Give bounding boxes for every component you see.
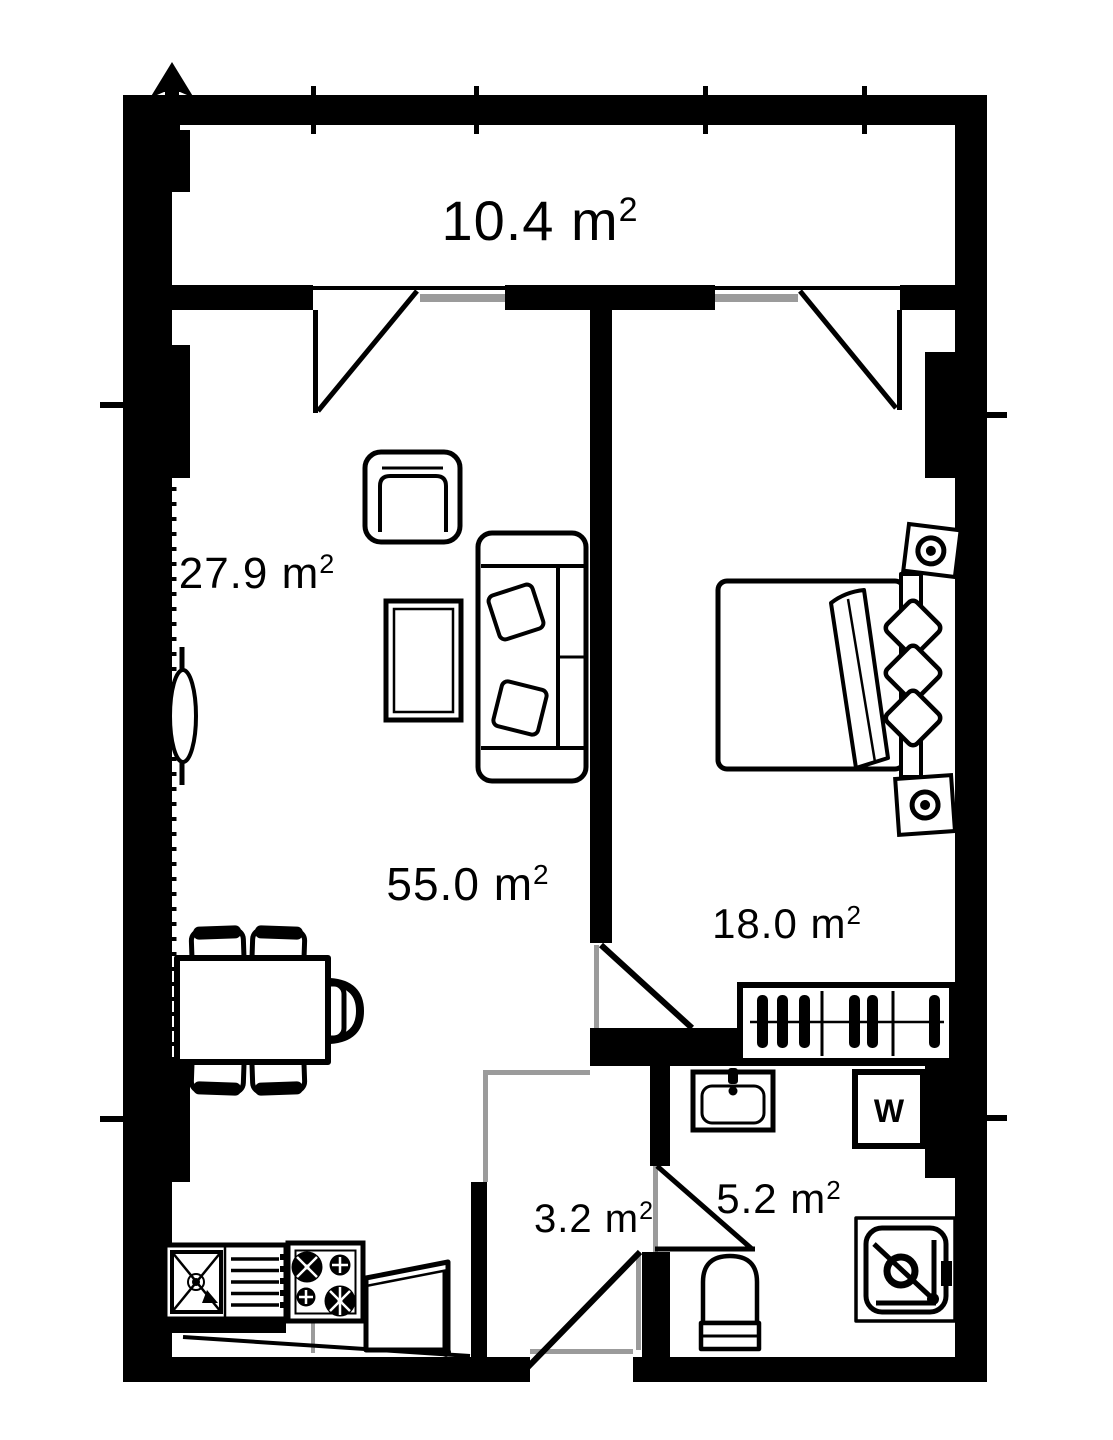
floor-plan: 10.4 m2 27.9 m2 55.0 m2 18.0 m2 3.2 m2 5… [0,0,1113,1440]
hallway-area-label: 3.2 m2 [534,1197,654,1241]
mullion-tick [862,86,867,134]
toilet [701,1256,759,1349]
hall-boundary-left [483,1070,488,1182]
bedroom-door-jamb-line [594,945,599,1028]
mullion-tick [703,86,708,134]
wall-left-pier-upper [123,345,190,478]
balcony-column [157,130,190,192]
balcony-glazing-living [420,294,505,302]
stove-burner [330,1255,351,1276]
coffee-table [386,601,461,720]
kitchen-appliance [366,1262,451,1357]
sofa-pillow [492,680,548,736]
kitchen-stove [288,1243,363,1321]
stove-burner [292,1252,323,1283]
mullion-tick [311,86,316,134]
total-area-label: 55.0 m2 [386,858,549,910]
living-room-area-label: 27.9 m2 [179,549,336,598]
wall-right-pier-lower [925,1060,987,1178]
armchair [365,452,460,542]
wall-top [123,95,987,125]
washbasin [693,1068,773,1130]
nightstand-top [903,524,960,577]
wall-bathroom-left-upper [650,1066,670,1166]
wall-bottom-right-segment [633,1357,987,1382]
bathroom-area-label: 5.2 m2 [716,1175,842,1222]
mullion-tick [474,86,479,134]
wardrobe [740,985,952,1061]
balcony-door-bedroom [800,291,902,410]
wall-bathroom-left-stub [642,1252,670,1359]
exterior-tick [100,1116,123,1122]
dining-set [177,925,360,1096]
wall-living-bedroom-divider [590,285,612,943]
balcony-door-living-room [313,291,417,413]
exterior-tick [100,402,123,408]
bedroom-door [601,945,692,1028]
sofa [478,533,586,781]
wall-bottom-left-segment [123,1357,530,1382]
wall-balcony-front-right [900,285,987,310]
shower [856,1218,955,1321]
nightstand-bottom [895,775,955,835]
counter-divider-line [311,1320,315,1353]
exterior-tick [987,412,1007,418]
stove-burner [297,1288,316,1307]
wall-right-pier-upper [925,352,987,478]
floor-plan-canvas: 10.4 m2 27.9 m2 55.0 m2 18.0 m2 3.2 m2 5… [0,0,1113,1440]
balcony-glazing-bedroom [715,294,798,302]
balcony-area-label: 10.4 m2 [441,189,638,252]
wall-hall-stub [471,1182,487,1357]
shower-mixer [941,1261,952,1286]
balcony-door-track-bedroom [715,286,900,290]
washing-machine-label: W [874,1093,905,1129]
balcony-door-track-living [313,286,505,290]
bedroom-area-label: 18.0 m2 [712,900,862,947]
entrance-jamb-line [636,1252,641,1350]
bed [718,574,943,777]
dining-table [177,958,328,1062]
hall-boundary-top [487,1070,590,1075]
exterior-tick [987,1115,1007,1121]
wall-balcony-front-left [123,285,313,310]
stove-burner [325,1286,356,1317]
kitchen-sink-unit [165,1245,286,1319]
wall-left-pier-lower [123,1057,190,1182]
